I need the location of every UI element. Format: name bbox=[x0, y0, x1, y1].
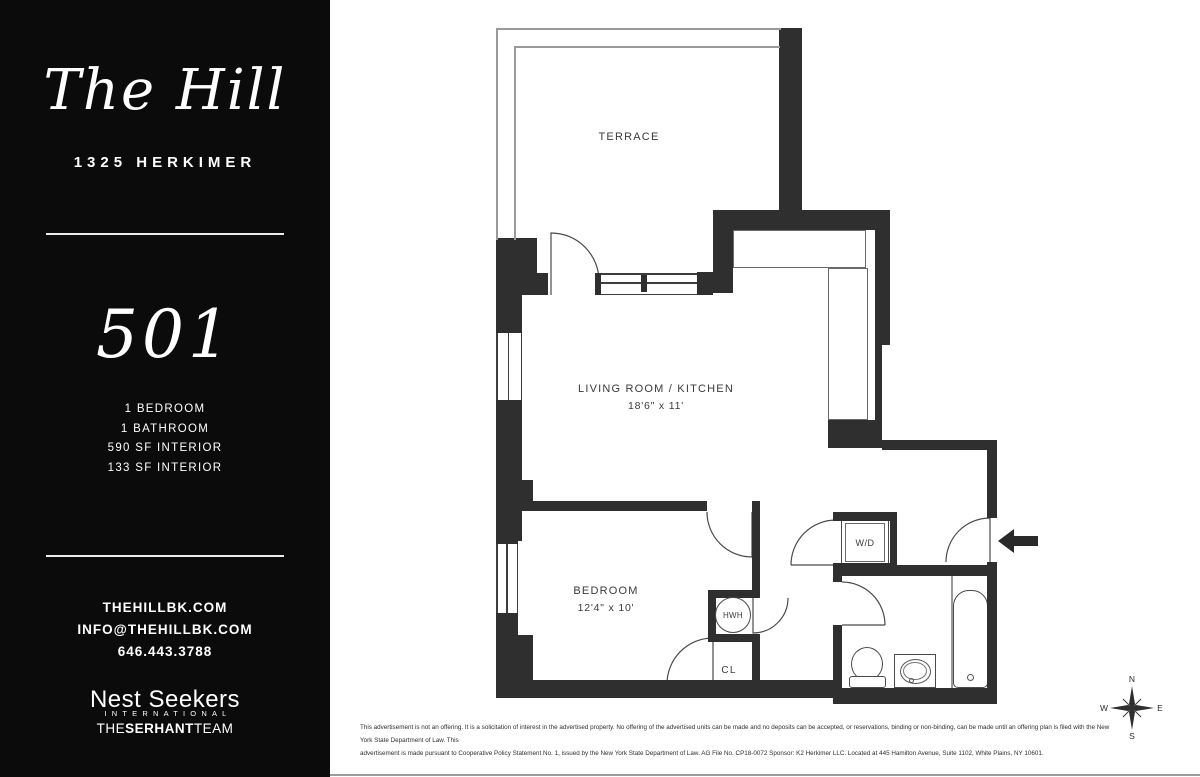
wall-segment bbox=[713, 210, 890, 230]
terrace-parapet-line bbox=[514, 46, 516, 240]
legal-disclaimer: This advertisement is not an offering. I… bbox=[360, 722, 1110, 760]
closet-door-arc bbox=[667, 638, 713, 684]
wall-segment bbox=[828, 420, 882, 448]
window bbox=[595, 273, 697, 295]
wall-segment bbox=[875, 230, 890, 345]
window-pane-line bbox=[521, 330, 523, 403]
terrace-parapet-line bbox=[496, 28, 781, 30]
kitchen-counter bbox=[828, 268, 868, 420]
wall-segment bbox=[890, 512, 897, 569]
window-frame-cap bbox=[496, 400, 522, 403]
compass-north-label: N bbox=[1129, 674, 1135, 684]
water-heater-label: HWH bbox=[716, 598, 750, 632]
bottom-border-line bbox=[330, 774, 1200, 776]
wall-segment bbox=[779, 28, 802, 212]
bedroom-door-arc bbox=[707, 512, 752, 557]
window-pane-line bbox=[508, 330, 510, 403]
window-frame-cap bbox=[496, 541, 518, 544]
wall-segment bbox=[496, 680, 841, 698]
kitchen-counter bbox=[733, 230, 866, 268]
wall-segment bbox=[697, 272, 713, 295]
floorplan-sheet: The Hill 1325 HERKIMER 501 1 BEDROOM 1 B… bbox=[0, 0, 1200, 777]
wall-segment bbox=[713, 230, 733, 293]
wall-segment bbox=[752, 501, 760, 598]
window-pane-line bbox=[506, 541, 508, 616]
wall-segment bbox=[833, 688, 997, 704]
window-pane-line bbox=[517, 541, 519, 616]
window-frame-cap bbox=[641, 275, 647, 292]
disclaimer-line-1: This advertisement is not an offering. I… bbox=[360, 722, 1110, 748]
washer-dryer-label: W/D bbox=[842, 520, 888, 565]
compass-south-label: S bbox=[1129, 731, 1135, 741]
window-pane-line bbox=[595, 294, 697, 296]
window-pane-line bbox=[496, 541, 498, 616]
wall-segment bbox=[833, 563, 842, 582]
wall-segment bbox=[752, 634, 760, 698]
water-heater-door-arc bbox=[753, 598, 788, 633]
wall-segment bbox=[496, 273, 522, 330]
entry-door-arc bbox=[946, 518, 990, 562]
compass-east-label: E bbox=[1157, 703, 1163, 713]
washer-dryer: W/D bbox=[841, 519, 889, 566]
window-frame-cap bbox=[496, 330, 522, 333]
window-frame-cap bbox=[496, 613, 518, 616]
terrace-parapet-line bbox=[951, 576, 953, 688]
terrace-door-arc bbox=[551, 233, 599, 295]
wall-segment bbox=[517, 635, 533, 680]
wall-segment bbox=[987, 562, 997, 704]
wall-segment bbox=[875, 345, 882, 420]
wall-segment bbox=[708, 634, 760, 642]
wall-segment bbox=[987, 450, 997, 518]
window-frame-cap bbox=[595, 273, 601, 295]
water-heater: HWH bbox=[715, 597, 751, 633]
window-pane-line bbox=[496, 330, 498, 403]
window bbox=[496, 330, 522, 403]
wall-segment bbox=[496, 616, 518, 680]
wall-segment bbox=[496, 403, 522, 541]
laundry-door-arc bbox=[791, 520, 836, 565]
disclaimer-line-2: advertisement is made pursuant to Cooper… bbox=[360, 748, 1110, 761]
window bbox=[496, 541, 518, 616]
door-swing-layer: N E S W bbox=[0, 0, 1200, 777]
wall-segment bbox=[518, 501, 707, 511]
terrace-parapet-line bbox=[496, 28, 498, 240]
compass-west-label: W bbox=[1100, 703, 1108, 713]
wall-segment bbox=[882, 440, 997, 450]
wall-segment bbox=[496, 238, 537, 273]
bathroom-door-arc bbox=[842, 582, 885, 625]
entry-arrow-icon bbox=[998, 529, 1038, 553]
terrace-parapet-line bbox=[514, 46, 780, 48]
